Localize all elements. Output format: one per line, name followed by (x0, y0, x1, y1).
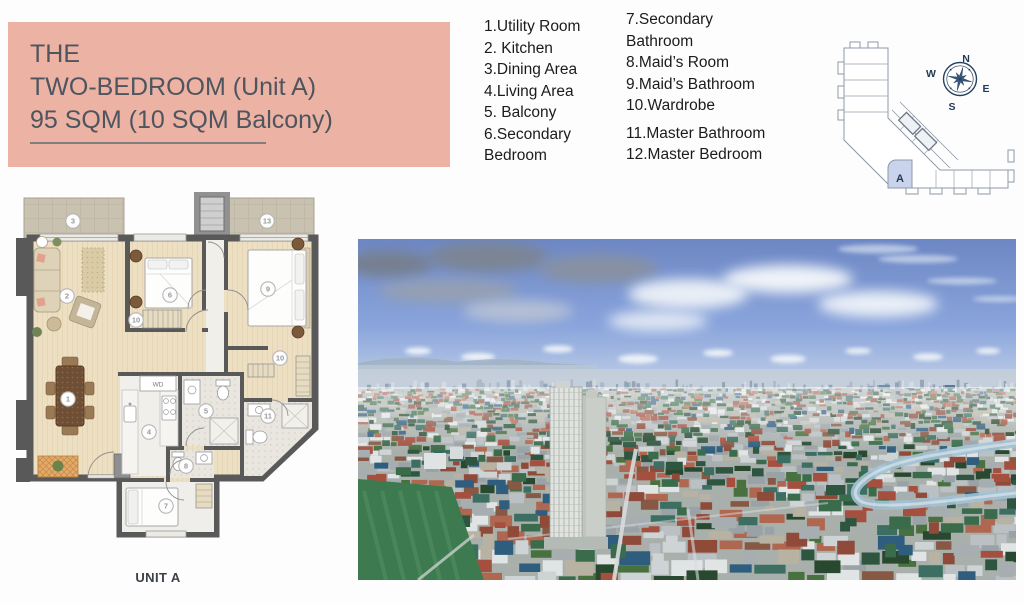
svg-text:1: 1 (66, 395, 70, 404)
legend-group-1: 7.Secondary Bathroom 8.Maid’s Room 9.Mai… (626, 9, 811, 117)
svg-text:3: 3 (71, 217, 75, 226)
svg-text:7: 7 (164, 502, 168, 511)
compass-west-label: W (926, 68, 936, 80)
room-legend-column-1: 1.Utility Room 2. Kitchen 3.Dining Area … (484, 16, 634, 167)
compass-icon: N W E S (926, 53, 989, 113)
floor-plan: WD (10, 190, 330, 550)
svg-text:13: 13 (263, 217, 271, 226)
compass-north-label: N (962, 53, 970, 65)
city-aerial-photo (358, 239, 1016, 580)
title-line-3: 95 SQM (10 SQM Balcony) (30, 104, 450, 137)
svg-text:2: 2 (65, 292, 69, 301)
title-line-2: TWO-BEDROOM (Unit A) (30, 71, 450, 104)
legend-item: 6.Secondary Bedroom (484, 124, 634, 167)
room-marker-master-bedroom: 9 (261, 282, 275, 296)
hall-floor (206, 240, 224, 374)
legend-item: 12.Master Bedroom (626, 144, 811, 166)
room-marker-balcony-left: 3 (66, 214, 80, 228)
title-underline (30, 142, 266, 144)
room-marker-maids-room: 7 (159, 499, 173, 513)
compass-east-label: E (982, 83, 989, 95)
legend-item: 5. Balcony (484, 102, 634, 124)
unit-label: UNIT A (98, 570, 218, 585)
legend-group-2: 11.Master Bathroom 12.Master Bedroom (626, 123, 811, 166)
unit-a-highlight: A (888, 160, 912, 188)
svg-text:10: 10 (276, 354, 284, 363)
washer-dryer-label: WD (153, 382, 164, 389)
room-marker-wardrobe-master: 10 (273, 351, 287, 365)
compass-south-label: S (948, 101, 955, 113)
room-marker-living: 2 (60, 289, 74, 303)
legend-item: 9.Maid’s Bathroom (626, 74, 811, 96)
master-bedroom-furniture (248, 238, 310, 338)
wardrobe-secondary (143, 310, 181, 328)
legend-item: 3.Dining Area (484, 59, 634, 81)
unit-a-letter: A (896, 173, 904, 185)
legend-item: 11.Master Bathroom (626, 123, 811, 145)
legend-item: 8.Maid’s Room (626, 52, 811, 74)
room-marker-secondary-bedroom: 6 (163, 288, 177, 302)
room-marker-secondary-bathroom: 5 (199, 404, 213, 418)
room-legend-column-2: 7.Secondary Bathroom 8.Maid’s Room 9.Mai… (626, 9, 811, 166)
room-marker-kitchen: 4 (142, 425, 156, 439)
entry-rug (38, 456, 78, 477)
building-plate-outline: A (838, 42, 1014, 194)
room-marker-dining: 1 (61, 392, 75, 406)
title-line-1: THE (30, 38, 450, 71)
service-shaft (194, 192, 230, 238)
building-keyplan: A N W E S (822, 22, 1022, 198)
svg-text:10: 10 (132, 316, 140, 325)
legend-item: 2. Kitchen (484, 38, 634, 60)
room-marker-maids-bathroom: 8 (179, 459, 193, 473)
legend-item: 4.Living Area (484, 81, 634, 103)
legend-item: 1.Utility Room (484, 16, 634, 38)
svg-text:8: 8 (184, 462, 188, 471)
brochure-slide: THE TWO-BEDROOM (Unit A) 95 SQM (10 SQM … (0, 0, 1024, 604)
room-marker-balcony-right: 13 (260, 214, 274, 228)
svg-text:6: 6 (168, 291, 172, 300)
svg-text:11: 11 (264, 412, 272, 421)
room-marker-master-bathroom: 11 (261, 409, 275, 423)
svg-text:9: 9 (266, 285, 270, 294)
legend-item: 7.Secondary Bathroom (626, 9, 811, 52)
title-block: THE TWO-BEDROOM (Unit A) 95 SQM (10 SQM … (8, 22, 450, 167)
svg-text:5: 5 (204, 407, 208, 416)
legend-item: 10.Wardrobe (626, 95, 811, 117)
room-marker-wardrobe-secondary: 10 (129, 313, 143, 327)
